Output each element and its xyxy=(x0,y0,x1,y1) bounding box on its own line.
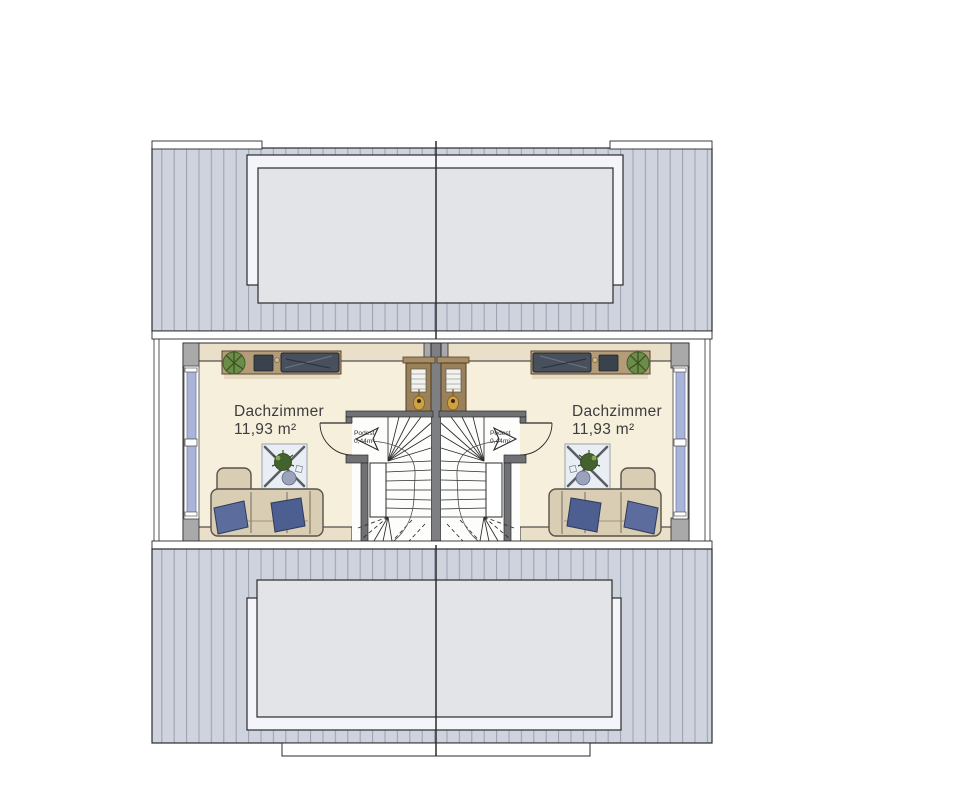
top-ridge-band-left xyxy=(152,141,262,149)
window-left xyxy=(184,366,199,519)
bottom-eaves-band xyxy=(152,541,712,549)
landing-area-right: 0,44m² xyxy=(490,438,511,445)
top-eaves-band xyxy=(152,331,712,339)
right-unit-stair xyxy=(439,411,526,554)
landing-label-right: Podest xyxy=(490,430,511,437)
window-right xyxy=(673,366,688,519)
landing-label-left: Podest xyxy=(354,430,375,437)
window-mullion xyxy=(674,439,686,446)
window-mullion xyxy=(185,439,197,446)
bottom-roof xyxy=(152,541,712,756)
room-area-right: 11,93 m² xyxy=(572,421,634,438)
room-label-left: Dachzimmer xyxy=(234,403,324,420)
floorplan-svg: Dachzimmer 11,93 m² Dachzimmer 11,93 m² … xyxy=(0,0,956,800)
landing-area-left: 0,44m² xyxy=(354,438,375,445)
room-label-right: Dachzimmer xyxy=(572,403,662,420)
party-wall xyxy=(431,343,441,548)
floorplan-canvas: Dachzimmer 11,93 m² Dachzimmer 11,93 m² … xyxy=(0,0,956,800)
top-roof xyxy=(152,141,712,339)
bottom-dormer-roof xyxy=(257,580,612,717)
top-ridge-band-right xyxy=(610,141,712,149)
room-area-left: 11,93 m² xyxy=(234,421,296,438)
